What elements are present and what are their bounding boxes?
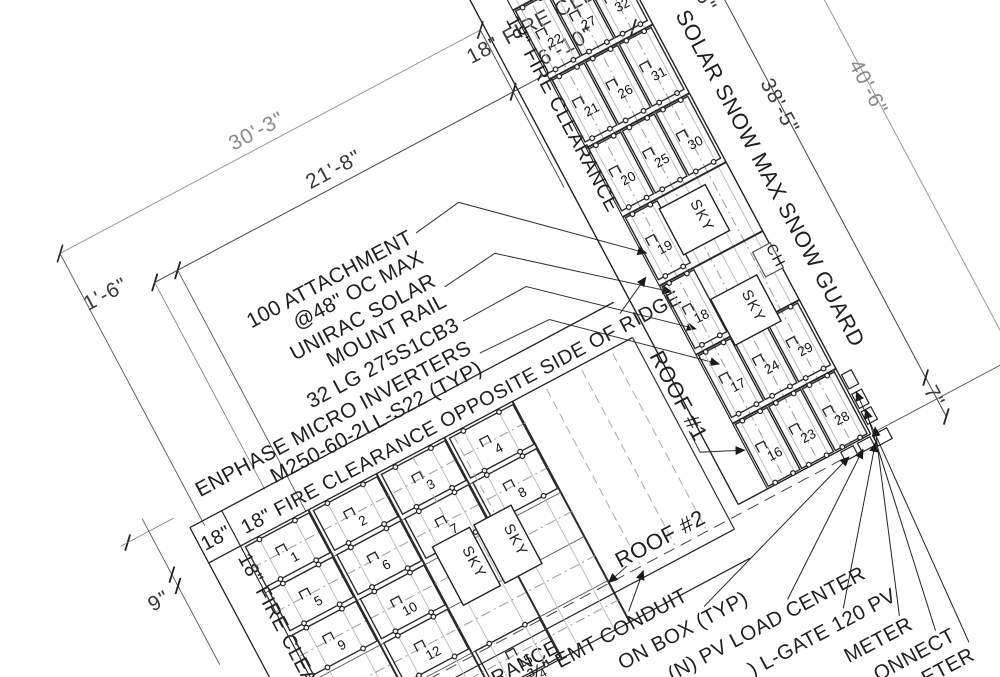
- attachment-dot: [537, 0, 543, 1]
- module-number: 3: [424, 476, 438, 493]
- attachment-dot: [823, 452, 829, 458]
- inverter-bracket: [344, 508, 356, 519]
- equipment-callouts: ¾" EMT CONDUITON BOX (TYP)(N) PV LOAD CE…: [483, 392, 996, 677]
- module-number: 9: [335, 637, 349, 654]
- attachment-dot: [803, 375, 809, 381]
- dim-30-3: 30'-3": [225, 107, 288, 155]
- attachment-dot: [662, 273, 668, 279]
- module-number: 5: [312, 592, 326, 609]
- attachment-dot: [735, 411, 741, 417]
- attachment-dot: [607, 126, 613, 132]
- attachment-dot: [769, 393, 775, 399]
- attachment-dot: [640, 108, 646, 114]
- attachment-dot: [693, 168, 699, 174]
- rotated-plan-group: 30'-3" 21'-8" 6'-10" 18" FIRE CLEARANCE …: [0, 0, 1000, 677]
- module-number: 8: [515, 484, 529, 501]
- roof2-18-tag: 18": [197, 522, 235, 556]
- attachment-dot: [857, 434, 863, 440]
- dim-40-6: 40'-6": [844, 56, 892, 119]
- dim-21-8: 21'-8": [302, 146, 365, 194]
- pv-module: [384, 609, 469, 677]
- roof1-snowguard-note: SOLAR SNOW MAX SNOW GUARD: [671, 5, 871, 351]
- attachment-dot: [656, 99, 662, 105]
- attachment-dot: [586, 48, 592, 54]
- dim-1-6: 1'-6": [79, 273, 131, 315]
- attachment-dot: [540, 493, 546, 499]
- dim-7: 7": [919, 382, 949, 411]
- attachment-dot: [772, 479, 778, 485]
- module-number: 23: [798, 426, 818, 446]
- attachment-dot: [677, 177, 683, 183]
- module-number: 6: [380, 556, 394, 573]
- module-number: 28: [832, 408, 852, 428]
- attachment-dot: [486, 641, 492, 647]
- module-number: 16: [765, 444, 785, 464]
- attachment-dot: [619, 31, 625, 37]
- inverter-bracket: [503, 480, 515, 491]
- attachment-dot: [416, 672, 422, 677]
- attachment-dot: [753, 401, 759, 407]
- attachment-dot: [790, 470, 796, 476]
- attachment-dot: [324, 664, 330, 670]
- attachment-dot: [711, 159, 717, 165]
- plan-canvas: 30'-3" 21'-8" 6'-10" 18" FIRE CLEARANCE …: [0, 0, 1000, 677]
- attachment-dot: [680, 263, 686, 269]
- attachment-dot: [451, 653, 457, 659]
- module-number: 32: [612, 0, 632, 15]
- attachment-dot: [820, 365, 826, 371]
- attachment-dot: [522, 622, 528, 628]
- attachment-dot: [674, 90, 680, 96]
- roof2-side-note: 18" FIRE CLEARANCE: [233, 550, 355, 677]
- pv-module: [337, 521, 422, 595]
- attachment-dot: [360, 645, 366, 651]
- inverter-bracket: [435, 516, 447, 527]
- inverter-bracket: [323, 632, 335, 643]
- attachment-dot: [717, 332, 723, 338]
- solar-plan-drawing: 30'-3" 21'-8" 6'-10" 18" FIRE CLEARANCE …: [0, 0, 1000, 677]
- attachment-dot: [623, 117, 629, 123]
- pv-module: [360, 565, 445, 639]
- attachment-dot: [839, 444, 845, 450]
- attachment-dot: [626, 204, 632, 210]
- inverter-bracket: [367, 552, 379, 563]
- module-number: 12: [423, 643, 443, 663]
- roof1-label: ROOF #1: [645, 346, 713, 445]
- attachment-dot: [806, 462, 812, 468]
- attachment-dot: [659, 186, 665, 192]
- dim-9: 9": [144, 586, 173, 616]
- pv-module: [473, 449, 558, 523]
- attachment-dot: [570, 57, 576, 63]
- attachment-dot: [604, 39, 610, 45]
- attachment-dot: [787, 383, 793, 389]
- module-number: 4: [492, 440, 506, 457]
- module-number: 10: [400, 599, 420, 619]
- dim-38-5: 38'-5": [755, 75, 803, 138]
- inverter-bracket: [480, 436, 492, 447]
- inverter-bracket: [299, 588, 311, 599]
- inverter-bracket: [276, 544, 288, 555]
- module-number: 2: [356, 512, 370, 529]
- attachment-dot: [643, 194, 649, 200]
- attachment-dot: [637, 21, 643, 27]
- attachment-dot: [699, 342, 705, 348]
- module-number: 1: [288, 548, 302, 565]
